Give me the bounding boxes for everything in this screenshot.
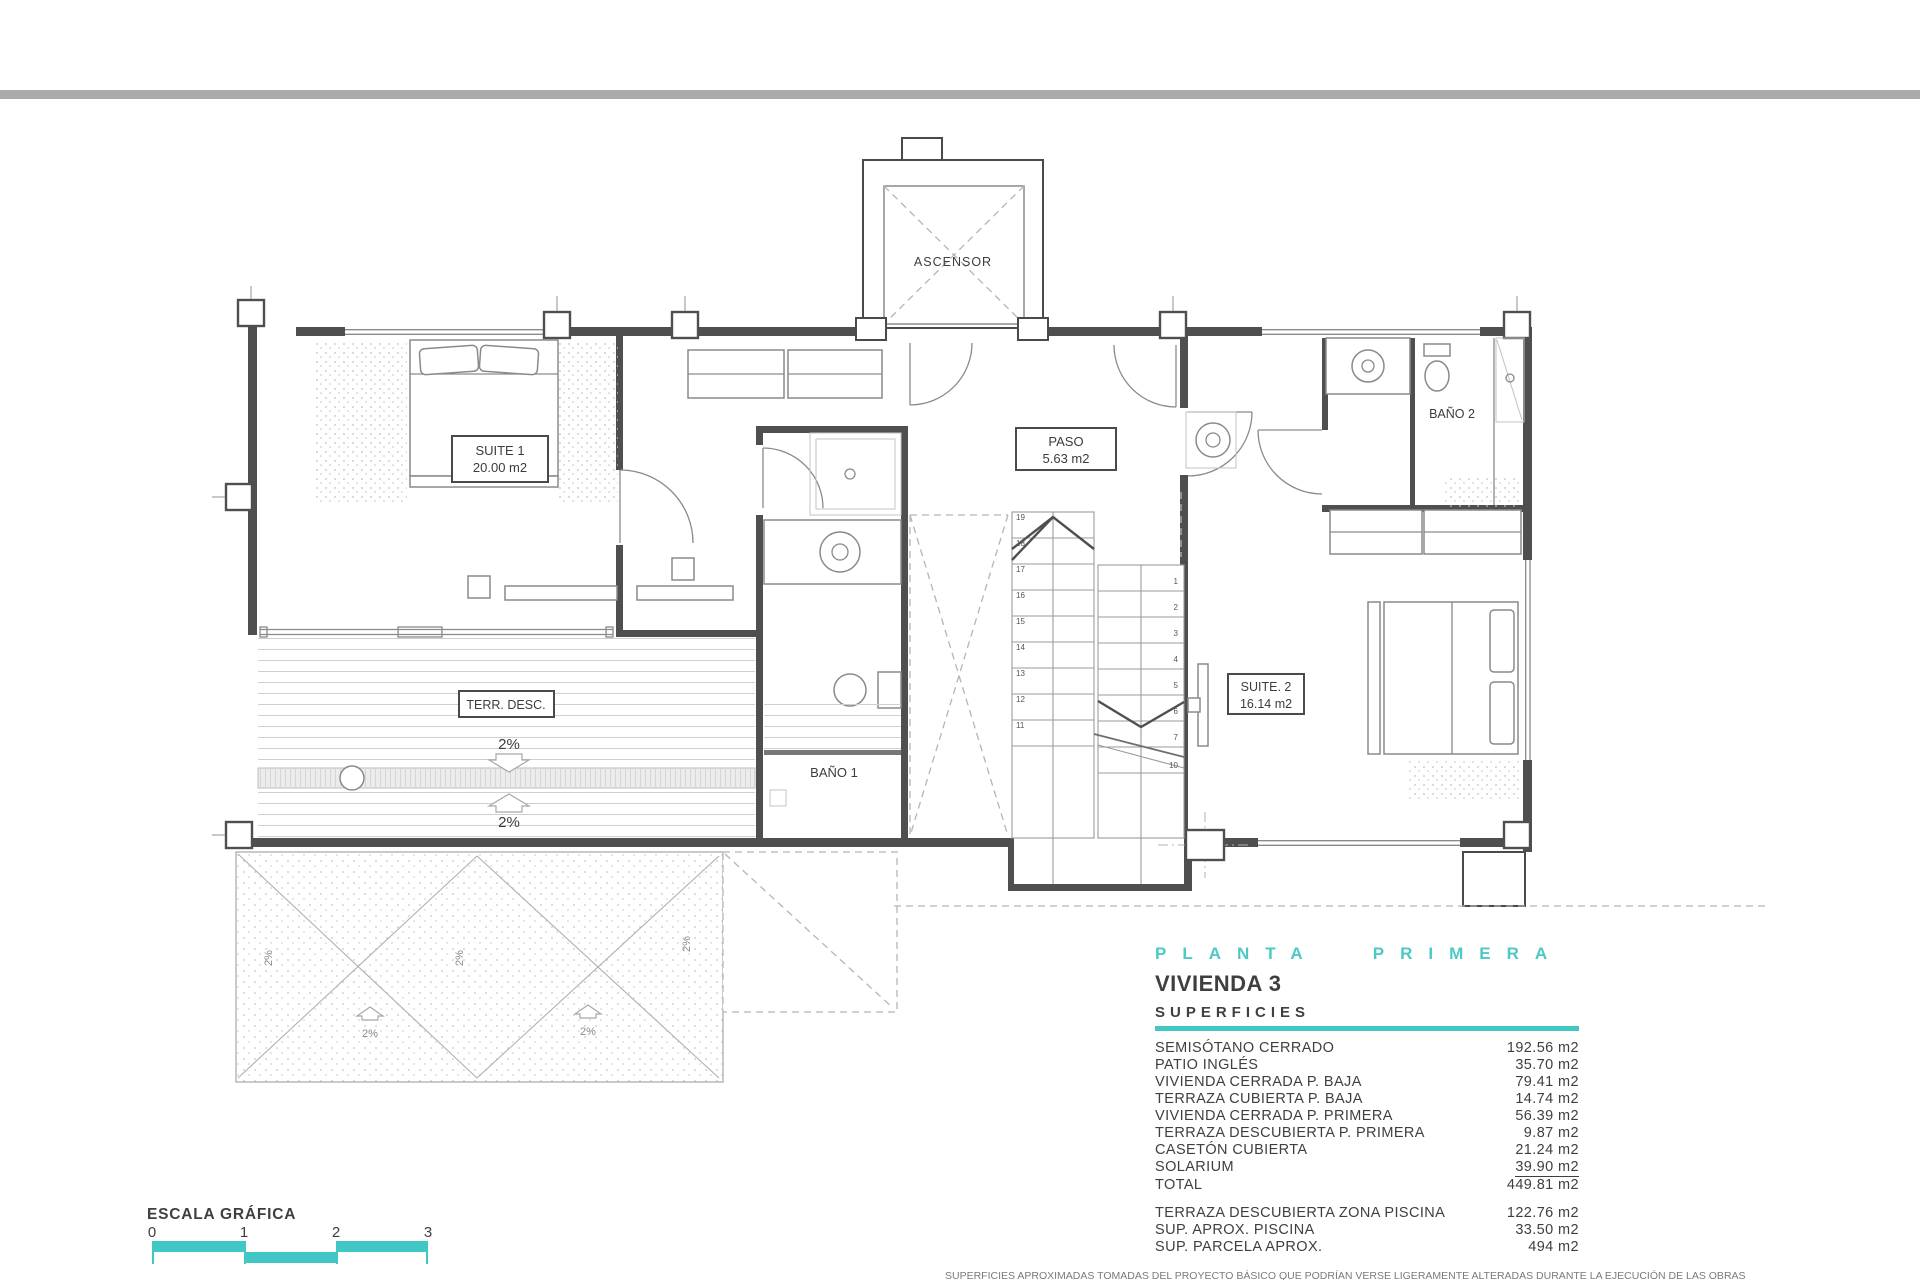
scale-bar: ESCALA GRÁFICA 0 1 2 3 (147, 1206, 447, 1266)
suite1-name: SUITE 1 (475, 443, 524, 458)
surface-value: 14.74 m2 (1515, 1091, 1579, 1108)
ascensor-label: ASCENSOR (914, 255, 992, 269)
paso-area-label: 5.63 m2 (1043, 451, 1090, 466)
stairs: 19 18 17 16 15 14 13 12 11 (1012, 492, 1184, 884)
toilet (1424, 344, 1450, 391)
bano1-label: BAÑO 1 (810, 765, 858, 780)
carpet-texture (1408, 760, 1520, 802)
surface-label: CASETÓN CUBIERTA (1155, 1142, 1308, 1159)
surface-label: TOTAL (1155, 1177, 1202, 1194)
terrace-label: TERR. DESC. (466, 698, 545, 712)
paso-area: PASO 5.63 m2 (910, 343, 1252, 476)
top-grey-bar (0, 90, 1920, 99)
step-number: 2 (1174, 603, 1179, 612)
surfaces-table: SEMISÓTANO CERRADO192.56 m2 PATIO INGLÉS… (1155, 1040, 1579, 1194)
surface-label: TERRAZA DESCUBIERTA ZONA PISCINA (1155, 1205, 1445, 1222)
summary-panel: PLANTA PRIMERA VIVIENDA 3 SUPERFICIES SE… (1155, 944, 1579, 1256)
vanity-sink (764, 520, 901, 584)
scale-tick-label: 2 (332, 1224, 340, 1241)
door-right (1114, 345, 1176, 407)
surfaces-subtitle: SUPERFICIES (1155, 1004, 1579, 1021)
step-number: 16 (1016, 591, 1025, 600)
extra-surfaces-table: TERRAZA DESCUBIERTA ZONA PISCINA122.76 m… (1155, 1205, 1579, 1256)
surface-row: VIVIENDA CERRADA P. PRIMERA56.39 m2 (1155, 1108, 1579, 1125)
step-number: 12 (1016, 695, 1025, 704)
scale-tick-label: 0 (148, 1224, 156, 1241)
slope-label: 2% (454, 950, 466, 966)
surface-value: 56.39 m2 (1515, 1108, 1579, 1125)
tv-unit (1188, 698, 1200, 712)
window-top-right (1262, 327, 1480, 336)
surface-value: 192.56 m2 (1507, 1040, 1579, 1057)
step-number: 15 (1016, 617, 1025, 626)
surface-row: SOLARIUM39.90 m2 (1155, 1159, 1579, 1177)
step-number: 11 (1016, 721, 1025, 730)
step-number: 10 (1169, 761, 1178, 770)
pedestal-sink (1186, 412, 1236, 468)
terrace: TERR. DESC. 2% 2% (258, 638, 755, 838)
suite2-room: SUITE. 2 16.14 m2 (1188, 478, 1521, 802)
step-number: 1 (1174, 577, 1179, 586)
scale-segment (336, 1241, 428, 1252)
shower (810, 433, 901, 515)
bed-suite2 (1368, 602, 1518, 754)
surface-value: 21.24 m2 (1515, 1142, 1579, 1159)
step-number: 13 (1016, 669, 1025, 678)
surface-value: 9.87 m2 (1524, 1125, 1579, 1142)
surface-row: PATIO INGLÉS35.70 m2 (1155, 1057, 1579, 1074)
suite2-area: 16.14 m2 (1240, 697, 1292, 711)
bano2-label: BAÑO 2 (1429, 407, 1475, 421)
paso-name: PASO (1048, 434, 1083, 449)
surface-value: 494 m2 (1528, 1239, 1579, 1256)
window-right-wall (1523, 560, 1532, 760)
step-number: 18 (1016, 539, 1025, 548)
scale-segment (244, 1252, 336, 1263)
bano1-room: BAÑO 1 (764, 433, 901, 806)
surface-value: 79.41 m2 (1515, 1074, 1579, 1091)
slope-label: 2% (263, 950, 275, 966)
surface-label: SOLARIUM (1155, 1159, 1234, 1177)
surface-label: SUP. PARCELA APROX. (1155, 1239, 1322, 1256)
door-bano1 (763, 448, 823, 508)
scale-tick (336, 1241, 338, 1264)
patio-area (236, 852, 723, 1082)
slope-label: 2% (580, 1026, 596, 1038)
surface-label: SUP. APROX. PISCINA (1155, 1222, 1315, 1239)
suite1-area: 20.00 m2 (473, 460, 527, 475)
chair (672, 558, 694, 580)
stairs-right-flight: 1 2 3 4 5 6 7 10 (1094, 492, 1184, 884)
surface-row: TERRAZA DESCUBIERTA ZONA PISCINA122.76 m… (1155, 1205, 1579, 1222)
step-number: 6 (1174, 707, 1179, 716)
step-number: 5 (1174, 681, 1179, 690)
step-number: 17 (1016, 565, 1025, 574)
disclaimer-text: SUPERFICIES APROXIMADAS TOMADAS DEL PROY… (945, 1270, 1746, 1280)
slope-label: 2% (498, 736, 520, 753)
surface-row: VIVIENDA CERRADA P. BAJA79.41 m2 (1155, 1074, 1579, 1091)
teal-rule (1155, 1026, 1579, 1031)
scale-segment (152, 1241, 244, 1252)
floor-plan-sheet: ASCENSOR SUITE 1 20.00 m2 (0, 0, 1920, 1280)
half-wall (764, 750, 901, 755)
surface-row: SUP. PARCELA APROX.494 m2 (1155, 1239, 1579, 1256)
surface-row: TERRAZA CUBIERTA P. BAJA14.74 m2 (1155, 1091, 1579, 1108)
surface-value: 33.50 m2 (1515, 1222, 1579, 1239)
scale-tick-label: 3 (424, 1224, 432, 1241)
surface-value: 35.70 m2 (1515, 1057, 1579, 1074)
step-number: 4 (1174, 655, 1179, 664)
surface-label: TERRAZA DESCUBIERTA P. PRIMERA (1155, 1125, 1425, 1142)
surface-row: SEMISÓTANO CERRADO192.56 m2 (1155, 1040, 1579, 1057)
door-lobby (910, 343, 972, 405)
scale-tick (152, 1241, 154, 1264)
surface-label: SEMISÓTANO CERRADO (1155, 1040, 1334, 1057)
surface-row: TERRAZA DESCUBIERTA P. PRIMERA9.87 m2 (1155, 1125, 1579, 1142)
step-number: 19 (1016, 513, 1025, 522)
stairs-left-flight: 19 18 17 16 15 14 13 12 11 (1012, 512, 1094, 884)
surface-label: VIVIENDA CERRADA P. BAJA (1155, 1074, 1362, 1091)
suite1-room: SUITE 1 20.00 m2 (315, 340, 618, 600)
door-bano2 (1258, 430, 1322, 494)
carpet-texture (558, 340, 618, 502)
surface-label: VIVIENDA CERRADA P. PRIMERA (1155, 1108, 1393, 1125)
scale-tick-label: 1 (240, 1224, 248, 1241)
surface-row: CASETÓN CUBIERTA21.24 m2 (1155, 1142, 1579, 1159)
terrace-label-box: TERR. DESC. (459, 691, 554, 717)
void-cross (910, 515, 1008, 836)
floor-plan-drawing: ASCENSOR SUITE 1 20.00 m2 (0, 0, 1920, 1280)
window-bottom-suite2 (1258, 838, 1460, 847)
paso-label-box: PASO 5.63 m2 (1016, 428, 1116, 470)
vanity-sink (1326, 338, 1410, 394)
step-number: 7 (1174, 733, 1179, 742)
desk (637, 586, 733, 600)
surface-value: 122.76 m2 (1507, 1205, 1579, 1222)
window-top-suite1 (345, 327, 555, 336)
surface-label: TERRAZA CUBIERTA P. BAJA (1155, 1091, 1363, 1108)
scale-tick (426, 1241, 428, 1264)
patio: 2% 2% 2% 2% 2% (236, 852, 897, 1082)
surface-row-total: TOTAL449.81 m2 (1155, 1177, 1579, 1194)
dwelling-title: VIVIENDA 3 (1155, 971, 1579, 997)
door-suite1 (620, 470, 693, 543)
dresser (505, 586, 617, 600)
surface-value-underlined: 39.90 m2 (1515, 1159, 1579, 1177)
suite1-label-box: SUITE 1 20.00 m2 (452, 436, 548, 482)
suite2-label-box: SUITE. 2 16.14 m2 (1228, 674, 1304, 714)
scale-tick (244, 1241, 246, 1264)
carpet-texture (1445, 478, 1521, 510)
step-number: 3 (1174, 629, 1179, 638)
tile-floor (764, 700, 901, 752)
carpet-texture (315, 340, 407, 502)
chair (468, 576, 490, 598)
sliding-door-terrace (260, 627, 613, 637)
slope-label: 2% (498, 814, 520, 831)
surface-label: PATIO INGLÉS (1155, 1057, 1258, 1074)
exterior-block (1463, 852, 1525, 906)
slope-label: 2% (362, 1028, 378, 1040)
plan-title: PLANTA PRIMERA (1155, 944, 1579, 964)
floor-drain (770, 790, 786, 806)
step-number: 14 (1016, 643, 1025, 652)
slope-label: 2% (681, 936, 693, 952)
elevator-shaft: ASCENSOR (856, 138, 1048, 340)
scale-bar-title: ESCALA GRÁFICA (147, 1206, 447, 1224)
surface-value: 449.81 m2 (1507, 1177, 1579, 1194)
suite2-name: SUITE. 2 (1241, 680, 1292, 694)
surface-row: SUP. APROX. PISCINA33.50 m2 (1155, 1222, 1579, 1239)
